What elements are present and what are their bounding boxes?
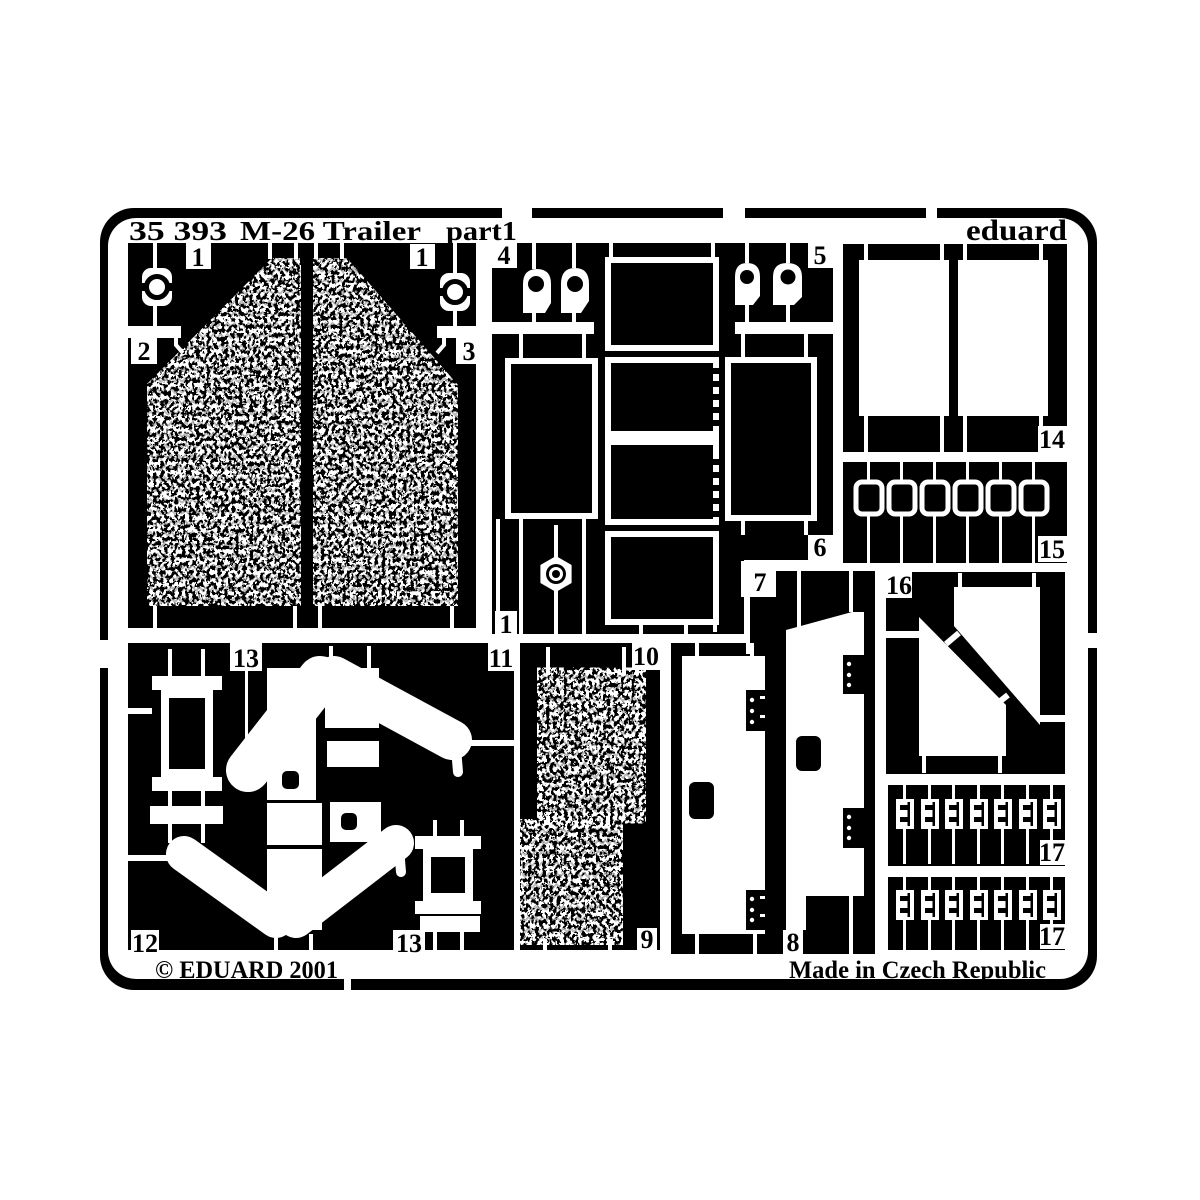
svg-text:11: 11	[489, 644, 514, 673]
svg-text:35 393: 35 393	[129, 216, 227, 246]
svg-text:M-26 Trailer: M-26 Trailer	[240, 216, 421, 246]
svg-text:8: 8	[787, 928, 800, 957]
svg-text:2: 2	[138, 337, 151, 366]
svg-text:16: 16	[886, 571, 912, 600]
svg-text:10: 10	[633, 642, 659, 671]
svg-text:Made in Czech Republic: Made in Czech Republic	[789, 957, 1046, 984]
svg-text:9: 9	[641, 925, 654, 954]
svg-text:© EDUARD 2001: © EDUARD 2001	[155, 957, 338, 984]
svg-text:6: 6	[814, 533, 827, 562]
svg-text:5: 5	[814, 241, 827, 270]
svg-text:3: 3	[463, 337, 476, 366]
svg-text:15: 15	[1039, 535, 1065, 564]
svg-text:eduard: eduard	[966, 214, 1067, 247]
svg-text:12: 12	[132, 929, 158, 958]
svg-text:14: 14	[1039, 425, 1065, 454]
svg-text:17: 17	[1039, 922, 1065, 951]
svg-text:13: 13	[396, 929, 422, 958]
svg-text:17: 17	[1039, 838, 1065, 867]
svg-text:1: 1	[500, 610, 513, 639]
svg-text:1: 1	[416, 243, 429, 272]
svg-text:7: 7	[754, 568, 767, 597]
svg-text:13: 13	[233, 644, 259, 673]
svg-text:4: 4	[498, 241, 511, 270]
svg-text:1: 1	[192, 243, 205, 272]
